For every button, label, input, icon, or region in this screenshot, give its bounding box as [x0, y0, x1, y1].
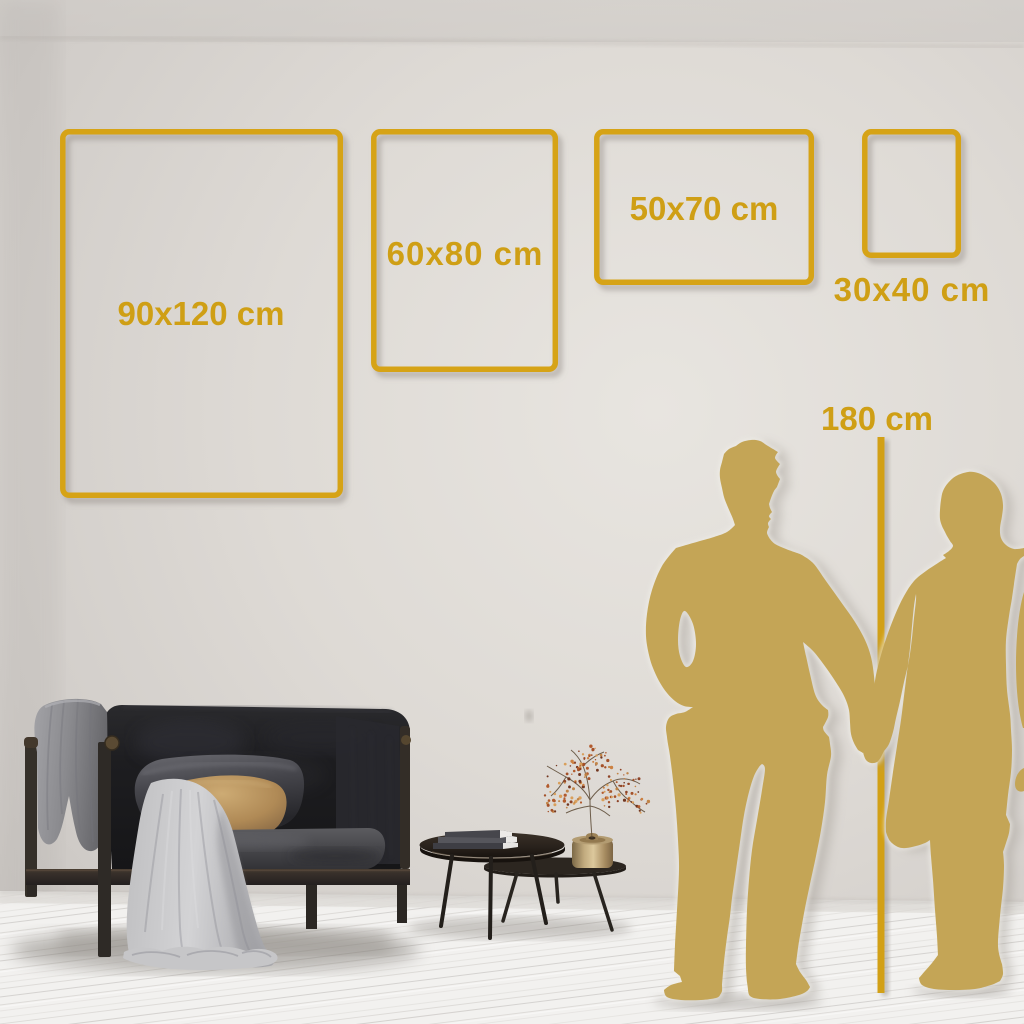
svg-text:50x70 cm: 50x70 cm	[630, 190, 779, 227]
svg-text:60x80 cm: 60x80 cm	[387, 235, 544, 272]
svg-text:30x40 cm: 30x40 cm	[834, 271, 991, 308]
svg-text:90x120 cm: 90x120 cm	[118, 295, 285, 332]
svg-text:180 cm: 180 cm	[821, 400, 933, 437]
